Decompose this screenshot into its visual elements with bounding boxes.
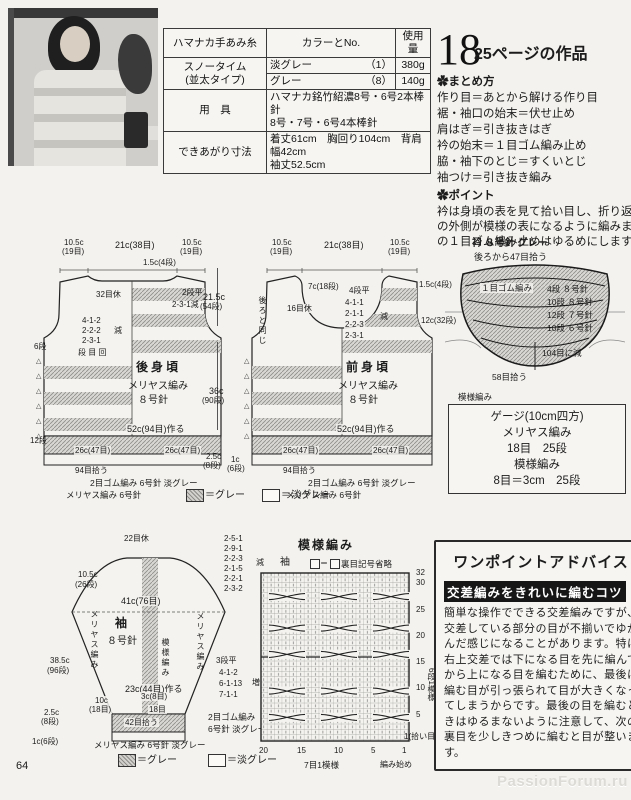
stitch-type: メリヤス編み — [338, 381, 398, 392]
measure-label: 26c(47目) — [282, 446, 319, 455]
measure-label: 38.5c — [50, 656, 70, 665]
chart-legend: 裏目記号省略 — [341, 559, 392, 569]
shaping-label: 6-1-13 — [219, 679, 242, 688]
dec-markers: △ △ △ △ △ △ — [244, 354, 249, 444]
light-gray-swatch — [208, 754, 226, 767]
color-no-1: （1） — [365, 59, 392, 72]
advice-subtitle: 交差編みをきれいに編むコツ — [444, 581, 626, 602]
row-number: 15 — [416, 657, 425, 666]
size-line2: 袖丈52.5cm — [270, 159, 325, 171]
piece-name: 前身頃 — [346, 362, 391, 372]
measure-label: 26c(47目) — [164, 446, 201, 455]
measure-label: 7c(18段) — [308, 282, 339, 291]
gauge-line: 18目 25段 — [451, 441, 623, 457]
pickup-label: 58目拾う — [492, 372, 527, 382]
chart-part-label: 袖 — [280, 557, 290, 568]
hem-label: メリヤス編み 6号針 淡グレー — [94, 740, 205, 750]
measure-label: 21.5c — [203, 292, 225, 302]
measure-label: 10.5c — [64, 238, 84, 247]
row-number: 1(拾い目) — [404, 732, 438, 741]
summary-heading: ✿まとめ方 — [437, 74, 627, 90]
col-number: 10 — [334, 746, 343, 755]
equals-sign: ＝ — [320, 559, 328, 568]
measure-label: (8段) — [41, 717, 59, 726]
gauge-box: ゲージ(10cm四方) メリヤス編み 18目 25段 模様編み 8目＝3cm 2… — [448, 404, 626, 494]
stitch-count-label: 32目休 — [96, 290, 121, 299]
size-label: できあがり寸法 — [164, 132, 267, 174]
measure-label: 21c(38目) — [115, 240, 155, 250]
measure-label: (19目) — [62, 247, 84, 256]
legend-label: ＝グレー — [137, 755, 177, 766]
tools-line2: 8号・7号・6号4本棒針 — [270, 117, 377, 129]
needle-size: ８号針 — [138, 395, 168, 406]
point-line: の外側が模様の表になるように編みます。 — [437, 219, 627, 235]
dec-label: 104目に減 — [542, 348, 582, 358]
photo-plant-pot — [124, 112, 148, 148]
measure-label: 21c(38目) — [324, 240, 364, 250]
col-number: 1 — [402, 746, 406, 755]
measure-label: 12c(32段) — [421, 316, 456, 325]
measure-label: (26段) — [75, 580, 97, 589]
gray-swatch — [118, 754, 136, 767]
work-title: 25ページの作品 — [474, 40, 587, 64]
measure-label: 10c — [94, 696, 109, 705]
shaping-label: 4-1-2 — [82, 316, 101, 325]
measure-label: (54段) — [200, 302, 222, 311]
photo-window-frame-left — [8, 8, 14, 166]
collar-title: 衿 ８号針 グレー — [472, 238, 548, 249]
photo-window-frame-top — [8, 8, 158, 18]
col-yarn: ハマナカ手あみ糸 — [164, 29, 267, 58]
col-color: カラーとNo. — [267, 29, 396, 58]
summary-item: 衿の始末＝１目ゴム編み止め — [437, 138, 627, 154]
shaping-label: 7-1-1 — [219, 690, 238, 699]
dec-markers: △ △ △ △ △ △ — [36, 354, 41, 444]
piece-name: 袖 — [114, 618, 131, 628]
measure-label: 1c(6段) — [32, 737, 58, 746]
same-as-back-label: 後ろと同じ — [258, 296, 267, 366]
shaping-label: 2-1-5 — [224, 564, 243, 573]
photo-model-sweater — [34, 70, 126, 166]
rib-label: 2目ゴム編み 6号針 淡グレー — [90, 478, 198, 488]
stitch-type: メリヤス編み — [196, 612, 205, 678]
advice-body: 簡単な操作でできる交差編みですが、交差している部分の目が不揃いでゆがんだ感じにな… — [444, 606, 631, 761]
chart-title: 模様編み — [298, 540, 354, 550]
measure-label: 3c(8目) — [140, 692, 168, 701]
row-number: 25 — [416, 605, 425, 614]
rib-label: 2目ゴム編み — [208, 712, 255, 722]
col-number: 5 — [371, 746, 375, 755]
measure-label: 18目 — [148, 705, 167, 714]
needle-step: 10段 ６号針 — [547, 323, 593, 333]
sleeve-diagram: 22目休 2-5-1 2-9-1 2-2-3 2-1-5 2-2-1 2-3-2… — [32, 534, 270, 774]
summary-item: 肩はぎ＝引き抜きはぎ — [437, 122, 627, 138]
col-number: 20 — [259, 746, 268, 755]
front-body-diagram: 10.5c (19目) 21c(38目) 10.5c (19目) — [242, 238, 447, 498]
legend-label: ＝グレー — [205, 490, 245, 501]
measure-label: 1.5c(4段) — [419, 280, 452, 289]
size-cell: 着丈61cm 胸回り104cm 背肩幅42cm 袖丈52.5cm — [267, 132, 431, 174]
stitch-count-label: 16目休 — [286, 304, 313, 313]
stitch-type: メリヤス編み — [90, 610, 99, 676]
summary-item: 作り目＝あとから解ける作り目 — [437, 90, 627, 106]
amount-2: 140g — [396, 74, 431, 90]
color-cell: グレー（8） — [267, 74, 396, 90]
measure-label: 10.5c — [182, 238, 202, 247]
tools-cell: ハマナカ銘竹紹濃8号・6号2本棒針 8号・7号・6号4本棒針 — [267, 90, 431, 132]
summary-item: 袖つけ＝引き抜き編み — [437, 170, 627, 186]
measure-label: 41c(76目) — [120, 596, 162, 606]
cast-on-label: 52c(94目)作る — [126, 424, 186, 434]
tools-line1: ハマナカ銘竹紹濃8号・6号2本棒針 — [270, 91, 424, 116]
light-gray-swatch — [262, 489, 280, 502]
shaping-label: 4-1-2 — [219, 668, 238, 677]
col-number: 15 — [297, 746, 306, 755]
shaping-label: 4段平 — [348, 286, 370, 295]
col-amount: 使用量 — [396, 29, 431, 58]
measure-label: 26c(47目) — [74, 446, 111, 455]
needle-step: 10段 ８号針 — [547, 297, 593, 307]
pickup-label: 42目拾う — [124, 718, 159, 727]
row-number: 10 — [416, 683, 425, 692]
advice-box: ワンポイントアドバイス 交差編みをきれいに編むコツ 簡単な操作でできる交差編みで… — [434, 540, 631, 771]
measure-label: (19目) — [180, 247, 202, 256]
measure-label: (90段) — [202, 396, 224, 405]
stitch-chart: 模様編み 袖 ＝ 裏目記号省略 — [252, 540, 437, 772]
amount-1: 380g — [396, 58, 431, 74]
legend-label: ＝淡グレー — [281, 490, 331, 501]
measure-label: (19目) — [388, 247, 410, 256]
shaping-label: 4-1-1 — [344, 298, 365, 307]
color-1: 淡グレー — [270, 59, 312, 72]
shaping-label: 2-5-1 — [224, 534, 243, 543]
color-no-2: （8） — [365, 75, 392, 88]
tools-label: 用 具 — [164, 90, 267, 132]
shaping-label: 2-3-2 — [224, 584, 243, 593]
measure-label: 10.5c — [78, 570, 98, 579]
dec-columns-label: 段 目 回 — [78, 348, 106, 357]
color-cell: 淡グレー（1） — [267, 58, 396, 74]
model-photo — [8, 8, 158, 166]
shaping-label: 2-2-1 — [224, 574, 243, 583]
advice-title: ワンポイントアドバイス — [444, 551, 631, 572]
measure-label: 36c — [209, 386, 224, 396]
dec-label: 減 — [380, 312, 388, 321]
measure-label: 2.5c — [44, 708, 59, 717]
shaping-label: 2-3-1 — [82, 336, 101, 345]
shaping-label: 2-9-1 — [224, 544, 243, 553]
gray-swatch — [186, 489, 204, 502]
cast-on-label: 52c(94目)作る — [336, 424, 396, 434]
shaping-label: 2-1-1 — [344, 309, 365, 318]
summary-item: 裾・袖口の始末＝伏せ止め — [437, 106, 627, 122]
rows-label: 6段 — [34, 342, 46, 351]
collar-shape — [445, 250, 625, 385]
yarn-type: (並太タイプ) — [185, 74, 245, 86]
row-number: 32 — [416, 568, 425, 577]
pickup-label: 94目拾う — [282, 466, 317, 475]
row-number: 20 — [416, 631, 425, 640]
needle-size: ８号針 — [106, 636, 138, 647]
color-2: グレー — [270, 75, 302, 88]
shaping-label: 3段平 — [216, 656, 236, 665]
shaping-label: 2-3-1 — [344, 331, 365, 340]
point-line: 衿は身頃の表を見て拾い目し、折り返した — [437, 204, 627, 220]
dec-label: 減 — [114, 326, 122, 335]
measure-label: 1.5c(4段) — [143, 258, 176, 267]
gauge-line: メリヤス編み — [451, 425, 623, 441]
measure-label: (8段) — [203, 461, 221, 470]
needle-step: 12段 ７号針 — [547, 310, 593, 320]
needle-size: ８号針 — [348, 395, 378, 406]
pickup-label: 94目拾う — [74, 466, 109, 475]
measure-label: (19目) — [270, 247, 292, 256]
materials-table: ハマナカ手あみ糸 カラーとNo. 使用量 スノータイム (並太タイプ) 淡グレー… — [163, 28, 431, 174]
knit-square — [310, 559, 320, 569]
shaping-label: 2-2-2 — [82, 326, 101, 335]
gauge-line: 模様編み — [451, 457, 623, 473]
stitch-type: メリヤス編み — [128, 381, 188, 392]
shaping-label: 2-3-1減 — [172, 300, 199, 309]
stitch-repeat-label: 7目1模様 — [304, 760, 339, 770]
measure-label: 26c(47目) — [372, 446, 409, 455]
photo-model-face — [60, 26, 90, 62]
measure-label: 10.5c — [272, 238, 292, 247]
yarn-name: スノータイム — [184, 61, 247, 73]
gauge-line: 8目＝3cm 25段 — [451, 473, 623, 489]
shaping-label: 2-2-3 — [224, 554, 243, 563]
rib-label: 2目ゴム編み 6号針 淡グレー — [308, 478, 416, 488]
watermark: PassionForum.ru — [497, 773, 628, 790]
measure-label: 10.5c — [390, 238, 410, 247]
rib-label: １目ゴム編み — [480, 283, 533, 293]
size-line1: 着丈61cm 胸回り104cm 背肩幅42cm — [270, 133, 422, 158]
gauge-title: ゲージ(10cm四方) — [451, 409, 623, 425]
row-number: 30 — [416, 578, 425, 587]
measure-label: (6段) — [227, 464, 245, 473]
yarn-name-cell: スノータイム (並太タイプ) — [164, 58, 267, 90]
row-number: 5 — [416, 710, 420, 719]
measure-label: (96段) — [47, 666, 69, 675]
measure-label: 1c — [231, 455, 239, 464]
chart-grid — [260, 572, 414, 744]
point-heading: ✿ポイント — [437, 188, 627, 204]
pattern-label: 模様編み — [458, 392, 492, 402]
magazine-page: ハマナカ手あみ糸 カラーとNo. 使用量 スノータイム (並太タイプ) 淡グレー… — [0, 0, 631, 800]
shaping-label: 2-2-3 — [344, 320, 365, 329]
stitch-count-label: 22目休 — [124, 534, 149, 543]
summary-item: 脇・袖下のとじ＝すくいとじ — [437, 154, 627, 170]
measure-label: 2.5c — [206, 452, 221, 461]
page-number: 64 — [16, 760, 28, 772]
measure-label: (18目) — [88, 705, 112, 714]
hem-label: メリヤス編み 6号針 — [66, 490, 141, 500]
shaping-label: 2段平 — [182, 288, 202, 297]
purl-square — [330, 559, 340, 569]
piece-name: 後身頃 — [136, 362, 181, 372]
start-label: 編み始め — [380, 760, 412, 769]
needle-step: 4段 ８号針 — [547, 284, 588, 294]
